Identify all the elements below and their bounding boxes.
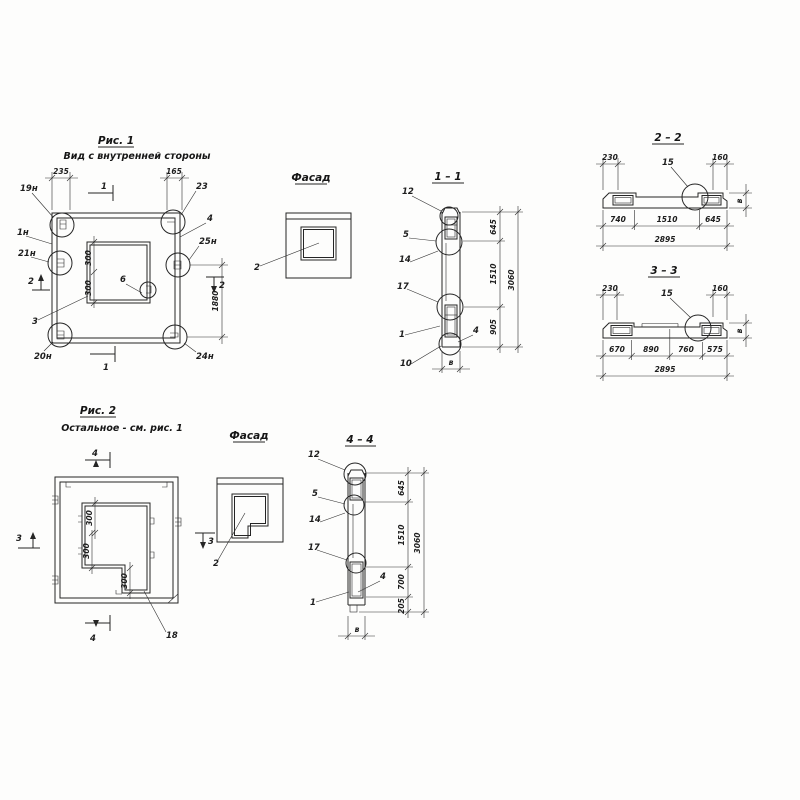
dim-160b: 160	[712, 284, 728, 293]
dim-300-a: 300	[84, 250, 93, 266]
figure2-callout-18: 18	[166, 631, 178, 641]
dim-760: 760	[678, 345, 694, 354]
dim-width-v2: в	[355, 625, 360, 634]
facade2-panel	[217, 478, 283, 542]
section22-title: 2 – 2	[654, 132, 681, 144]
dim-300c: 300	[120, 573, 129, 589]
dim-700: 700	[397, 574, 406, 590]
callout-1: 1	[399, 330, 405, 340]
facade2: Фасад 2	[205, 425, 310, 589]
section-2-2: 2 – 2 15 230 160 в 740 1510 645 2895	[590, 120, 800, 264]
callout-3: 3	[32, 317, 38, 327]
facade2-drawing: Фасад 2	[205, 425, 310, 585]
dim-165: 165	[166, 167, 182, 176]
dim-230b: 230	[602, 284, 618, 293]
callout-19n: 19н	[20, 184, 38, 194]
dim-740: 740	[610, 215, 626, 224]
facade2-callout-2: 2	[213, 559, 219, 569]
dim-2895: 2895	[655, 235, 676, 244]
section33-title: 3 – 3	[650, 265, 677, 277]
section44-member	[348, 470, 365, 612]
figure2-section3-markers: 3 3	[16, 532, 215, 549]
section-4-4: 4 – 4 12 5 14 17 1 4 645	[300, 430, 445, 659]
dim-205: 205	[397, 598, 406, 614]
figure1-plan-drawing: Рис. 1 Вид с внутренней стороны 235 165	[10, 130, 250, 390]
figure2-dims-300: 300 300 300	[82, 497, 133, 599]
figure1-subtitle: Вид с внутренней стороны	[63, 151, 210, 162]
section-3-3: 3 – 3 15 230 160 в 670 890 760 575	[590, 255, 800, 399]
section44-title: 4 – 4	[345, 434, 373, 446]
dim-230: 230	[602, 153, 618, 162]
dim-3060b: 3060	[413, 533, 422, 554]
dim-905: 905	[489, 319, 498, 335]
dim-1510c: 1510	[397, 525, 406, 546]
callout-6: 6	[120, 275, 126, 285]
section1-mark-bottom: 1	[103, 363, 109, 373]
facade1-title: Фасад	[291, 172, 330, 184]
dim-thickness-v2: в	[735, 328, 744, 333]
facade1-callout-2: 2	[254, 263, 260, 273]
section-3-3-drawing: 3 – 3 15 230 160 в 670 890 760 575	[590, 255, 800, 395]
figure1-dim-165: 165	[160, 167, 189, 210]
dim-300-b: 300	[84, 280, 93, 296]
callout-4: 4	[472, 326, 479, 336]
callout-14b: 14	[309, 515, 321, 525]
callout-12b: 12	[308, 450, 320, 460]
figure1-titles: Рис. 1 Вид с внутренней стороны	[63, 135, 210, 162]
callout-17: 17	[397, 282, 409, 292]
section11-title: 1 – 1	[434, 171, 461, 183]
section-2-2-drawing: 2 – 2 15 230 160 в 740 1510 645 2895	[590, 120, 800, 260]
section3-mark-left: 3	[16, 534, 22, 544]
figure2-subtitle: Остальное - см. рис. 1	[61, 423, 183, 434]
callout-17b: 17	[308, 543, 320, 553]
section22-member	[603, 184, 727, 210]
dim-300b: 300	[82, 543, 91, 559]
figure1-section2-markers: 2 2	[28, 274, 225, 293]
dim-thickness-v: в	[735, 198, 744, 203]
figure1-dim-235: 235	[45, 167, 78, 210]
section-1-1-drawing: 1 – 1 12 5 14 17 1 10 4	[390, 165, 545, 400]
figure2-panel-outline	[52, 477, 181, 603]
callout-4b: 4	[379, 572, 386, 582]
dim-160: 160	[712, 153, 728, 162]
callout-4: 4	[206, 214, 213, 224]
figure2-titles: Рис. 2 Остальное - см. рис. 1	[61, 405, 183, 434]
section2-mark-left: 2	[28, 277, 34, 287]
dim-width-v: в	[449, 358, 454, 367]
callout-12: 12	[402, 187, 414, 197]
callout-1b: 1	[310, 598, 316, 608]
section1-mark-top: 1	[101, 182, 107, 192]
section22-callout-15: 15	[662, 158, 674, 168]
figure1-detail-circles	[48, 210, 190, 349]
dim-670: 670	[609, 345, 625, 354]
callout-5: 5	[403, 230, 409, 240]
callout-10: 10	[400, 359, 412, 369]
facade2-title: Фасад	[229, 430, 268, 442]
section4-mark-top: 4	[91, 449, 98, 459]
section22-dim-thickness: в	[729, 184, 752, 217]
section11-dims: 645 1510 905 3060 в	[432, 206, 523, 373]
dim-1510b: 1510	[657, 215, 678, 224]
callout-25n: 25н	[199, 237, 217, 247]
dim-645b: 645	[705, 215, 721, 224]
callout-20n: 20н	[34, 352, 52, 362]
section44-callouts: 12 5 14 17 1 4	[308, 450, 386, 608]
dim-1880: 1880	[211, 291, 220, 312]
dim-3060: 3060	[507, 270, 516, 291]
dim-1510: 1510	[489, 264, 498, 285]
figure1-title: Рис. 1	[98, 135, 134, 147]
figure1-plan: Рис. 1 Вид с внутренней стороны 235 165	[10, 130, 250, 394]
callout-23: 23	[196, 182, 208, 192]
section33-member	[603, 315, 727, 341]
facade1: Фасад 2	[245, 165, 365, 334]
section11-detail-circles	[436, 207, 463, 355]
section-4-4-drawing: 4 – 4 12 5 14 17 1 4 645	[300, 430, 445, 655]
section-1-1: 1 – 1 12 5 14 17 1 10 4	[390, 165, 545, 404]
dim-890: 890	[643, 345, 659, 354]
callout-5b: 5	[312, 489, 318, 499]
dim-645c: 645	[397, 480, 406, 496]
section22-dims-bottom: 740 1510 645 2895	[596, 210, 734, 251]
section11-callouts: 12 5 14 17 1 10 4	[397, 187, 479, 369]
facade1-drawing: Фасад 2	[245, 165, 365, 330]
figure2-title: Рис. 2	[80, 405, 116, 417]
section33-callout-15: 15	[661, 289, 673, 299]
section33-dim-thickness: в	[729, 314, 752, 347]
figure1-section1-markers: 1 1	[88, 182, 115, 373]
callout-24n: 24н	[196, 352, 214, 362]
section33-dims-bottom: 670 890 760 575 2895	[596, 329, 734, 381]
dim-235: 235	[53, 167, 69, 176]
facade1-panel	[286, 213, 351, 278]
callout-14: 14	[399, 255, 411, 265]
section4-mark-bottom: 4	[89, 634, 96, 644]
figure1-dim-1880: 1880	[187, 258, 228, 344]
dim-300a: 300	[85, 510, 94, 526]
dim-645: 645	[489, 219, 498, 235]
blueprint-page: { "figure1": { "title": "Рис. 1", "subti…	[0, 0, 800, 800]
dim-2895b: 2895	[655, 365, 676, 374]
dim-575: 575	[707, 345, 723, 354]
